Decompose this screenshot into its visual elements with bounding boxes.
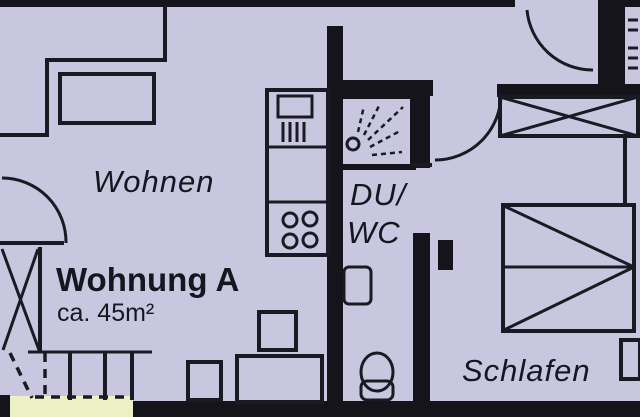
wall-stub-bottom-left xyxy=(0,395,10,417)
wall-bottom xyxy=(133,401,640,417)
room-label-shower: DU/ xyxy=(350,177,409,212)
apartment-title: Wohnung A xyxy=(56,261,239,298)
wall-stub-bedroom-door xyxy=(438,240,453,270)
stair-landing-outside xyxy=(0,396,133,417)
room-label-living: Wohnen xyxy=(93,164,214,199)
room-label-wc: WC xyxy=(347,215,401,250)
room-label-bedroom: Schlafen xyxy=(462,353,591,388)
wall-bath-right-lower xyxy=(413,233,430,405)
apartment-area: ca. 45m² xyxy=(57,299,154,327)
floor-plan-drawing: Wohnen Wohnung A ca. 45m² DU/ WC Schlafe… xyxy=(0,0,640,417)
wall-top-left xyxy=(0,0,515,7)
floor-plan: Wohnen Wohnung A ca. 45m² DU/ WC Schlafe… xyxy=(0,0,640,417)
wall-hall-right xyxy=(598,0,625,85)
